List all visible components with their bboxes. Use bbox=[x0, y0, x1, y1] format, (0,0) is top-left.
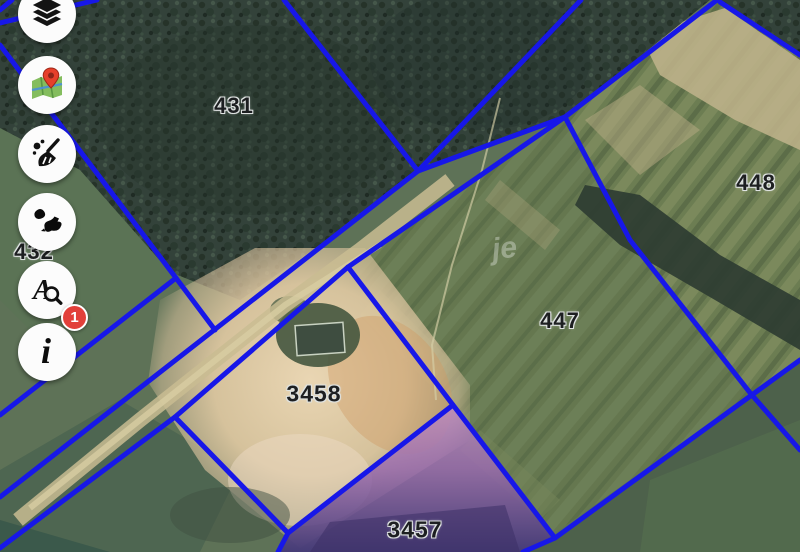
region-overview-button[interactable] bbox=[18, 193, 76, 251]
broom-icon bbox=[29, 136, 65, 172]
map-viewport[interactable]: 431 432 447 448 3458 3457 je bbox=[0, 0, 800, 552]
search-text-icon: A bbox=[29, 272, 65, 308]
layers-icon bbox=[28, 0, 66, 34]
region-shape-icon bbox=[29, 204, 65, 240]
layers-button[interactable] bbox=[18, 0, 76, 43]
info-glyph: i bbox=[41, 332, 51, 371]
info-icon: i bbox=[29, 332, 65, 372]
notification-badge: 1 bbox=[61, 304, 88, 331]
map-toolbar: A i 1 bbox=[0, 0, 800, 552]
info-button[interactable]: i bbox=[18, 323, 76, 381]
clear-map-button[interactable] bbox=[18, 125, 76, 183]
map-pin-icon bbox=[28, 66, 66, 104]
locate-on-map-button[interactable] bbox=[18, 56, 76, 114]
